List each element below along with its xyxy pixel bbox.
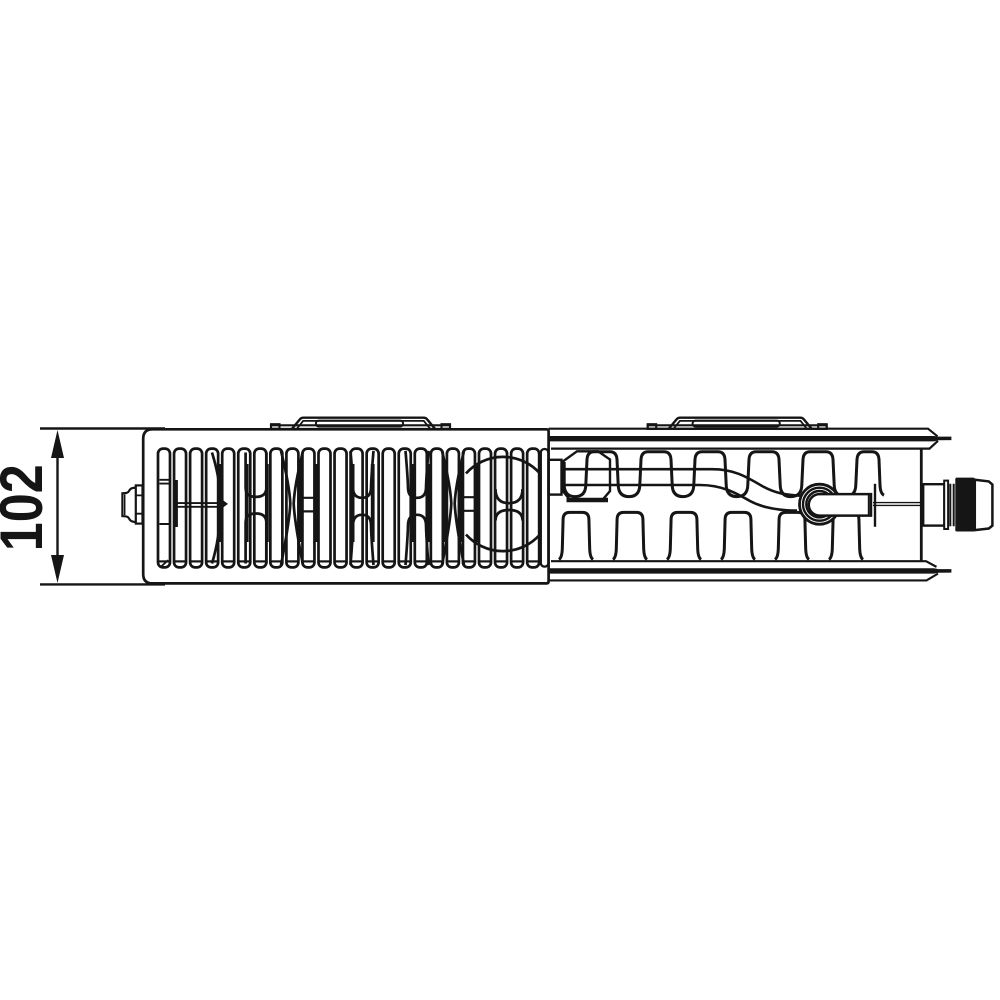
svg-text:102: 102 (0, 464, 55, 551)
